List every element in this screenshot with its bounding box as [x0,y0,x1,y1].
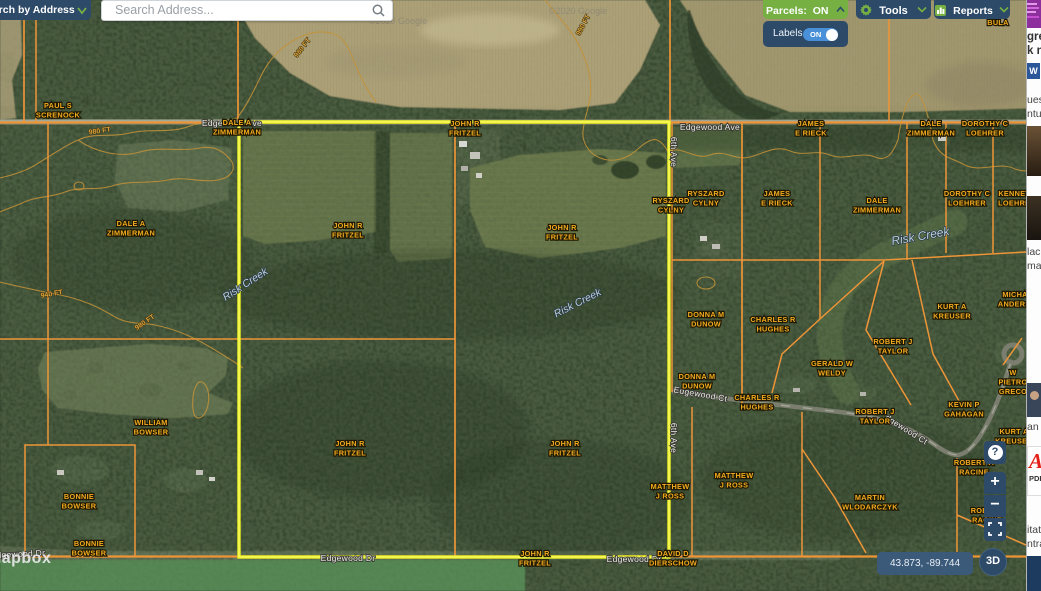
svg-text:ROBERT J: ROBERT J [855,407,894,416]
svg-text:DIERSCHOW: DIERSCHOW [649,559,697,568]
svg-text:W: W [1009,368,1016,377]
svg-text:GAHAGAN: GAHAGAN [944,410,984,419]
svg-text:6th Ave: 6th Ave [669,137,679,167]
svg-text:J ROSS: J ROSS [656,492,685,501]
svg-text:LOEHRER: LOEHRER [966,129,1004,138]
svg-text:DALE: DALE [920,119,941,128]
svg-text:SCRENOCK: SCRENOCK [36,111,81,120]
svg-text:FRITZEL: FRITZEL [546,233,578,242]
svg-text:JOHN R: JOHN R [547,223,577,232]
svg-text:ZIMMERMAN: ZIMMERMAN [907,129,955,138]
svg-text:DUNOW: DUNOW [691,320,721,329]
svg-text:KURT A: KURT A [999,427,1029,436]
svg-text:JAMES: JAMES [798,119,825,128]
svg-text:DALE: DALE [866,196,887,205]
svg-text:©2020 Google: ©2020 Google [549,6,607,16]
svg-text:JOHN R: JOHN R [550,439,580,448]
svg-text:RYSZARD: RYSZARD [652,196,689,205]
svg-text:FRITZEL: FRITZEL [449,129,481,138]
svg-text:ZIMMERMAN: ZIMMERMAN [213,128,261,137]
svg-text:WLODARCZYK: WLODARCZYK [842,503,898,512]
svg-text:BOWSER: BOWSER [62,502,97,511]
svg-text:DALE A: DALE A [223,118,252,127]
svg-text:BONNIE: BONNIE [64,492,94,501]
svg-text:E RIECK: E RIECK [761,199,793,208]
svg-text:DOROTHY C: DOROTHY C [962,119,1009,128]
svg-text:KREUSER: KREUSER [933,312,971,321]
svg-text:LOEHRER: LOEHRER [948,199,986,208]
svg-text:ZIMMERMAN: ZIMMERMAN [107,229,155,238]
svg-text:RYSZARD: RYSZARD [687,189,724,198]
svg-text:WILLIAM: WILLIAM [134,418,167,427]
svg-text:BOWSER: BOWSER [72,549,107,558]
svg-text:JAMES: JAMES [764,189,791,198]
svg-text:FRITZEL: FRITZEL [549,449,581,458]
svg-text:FRITZEL: FRITZEL [519,559,551,568]
svg-text:DONNA M: DONNA M [679,372,716,381]
svg-text:FRITZEL: FRITZEL [334,449,366,458]
svg-text:GRECO: GRECO [999,387,1027,396]
svg-text:PIETRO: PIETRO [999,378,1028,387]
svg-text:E RIECK: E RIECK [795,129,827,138]
svg-text:HUGHES: HUGHES [740,403,773,412]
svg-text:DAVID D: DAVID D [657,549,689,558]
svg-text:BONNIE: BONNIE [74,539,104,548]
svg-text:JOHN R: JOHN R [520,549,550,558]
svg-text:MATTHEW: MATTHEW [715,471,754,480]
svg-text:KURT A: KURT A [937,302,967,311]
svg-text:CHARLES R: CHARLES R [750,315,796,324]
svg-text:JOHN R: JOHN R [333,221,363,230]
svg-text:Edgewood Ave: Edgewood Ave [680,122,740,132]
svg-text:WELDY: WELDY [818,369,846,378]
svg-text:CHARLES R: CHARLES R [734,393,780,402]
svg-text:CYLNY: CYLNY [693,199,719,208]
svg-text:MARTIN: MARTIN [855,493,885,502]
svg-text:HUGHES: HUGHES [756,325,789,334]
svg-text:JOHN R: JOHN R [335,439,365,448]
svg-text:ZIMMERMAN: ZIMMERMAN [853,206,901,215]
svg-text:J ROSS: J ROSS [720,481,749,490]
svg-text:BULA: BULA [987,18,1009,27]
svg-text:6th Ave: 6th Ave [669,423,679,453]
svg-text:JOHN R: JOHN R [450,119,480,128]
svg-text:TAYLOR: TAYLOR [878,347,909,356]
svg-text:KEVIN P: KEVIN P [948,400,979,409]
svg-text:PAUL S: PAUL S [44,101,72,110]
svg-text:DONNA M: DONNA M [688,310,725,319]
svg-text:GERALD W: GERALD W [811,359,853,368]
svg-text:TAYLOR: TAYLOR [860,417,891,426]
svg-text:ROBERT J: ROBERT J [873,337,912,346]
svg-text:BOWSER: BOWSER [134,428,169,437]
svg-text:FRITZEL: FRITZEL [332,231,364,240]
svg-text:DOROTHY C: DOROTHY C [944,189,991,198]
svg-text:CYLNY: CYLNY [658,206,684,215]
svg-text:DUNOW: DUNOW [682,382,712,391]
svg-text:DALE A: DALE A [117,219,146,228]
svg-text:Edgewood Dr: Edgewood Dr [321,553,376,563]
svg-text:MATTHEW: MATTHEW [651,482,690,491]
